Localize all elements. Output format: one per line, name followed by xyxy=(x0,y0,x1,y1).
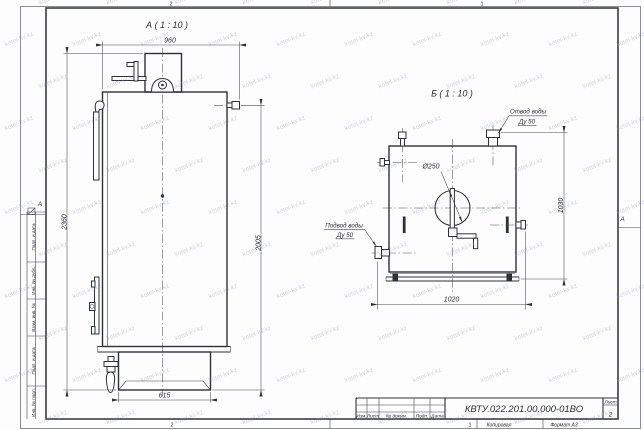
zone-bottom-right: 1 xyxy=(468,423,471,429)
fold-mark-left: А xyxy=(37,201,42,208)
left-upper-stub xyxy=(377,159,420,167)
inlet-label-line1: Подвод воды xyxy=(325,223,363,230)
ash-door-latch xyxy=(104,357,118,393)
engineering-drawing: 2 1 2 1 А А Подп. и дата Инв. № дубл. Вз… xyxy=(0,0,644,430)
titleblock-col-data: Дата xyxy=(430,414,444,420)
dim-960: 960 xyxy=(164,38,176,45)
drawing-sheet: 2 1 2 1 А А Подп. и дата Инв. № дубл. Вз… xyxy=(0,0,644,430)
body-center-mark xyxy=(161,194,164,197)
boiler-top-view xyxy=(372,126,529,294)
sidebar-label-podp-data-1: Подп. и дата xyxy=(31,223,36,251)
dim-2005: 2005 xyxy=(256,235,263,252)
titleblock-col-ndokum: № докум. xyxy=(386,414,407,420)
left-weld-mark xyxy=(403,217,406,234)
sidebar-label-podp-data-2: Подп. и дата xyxy=(31,347,36,375)
inlet-water-label: Подвод воды Ду 50 xyxy=(324,223,377,247)
damper-axle-center xyxy=(161,84,164,87)
outlet-label-line2: Ду 50 xyxy=(518,119,536,126)
sidebar-label-vzam-inv: Взам. инв. № xyxy=(31,303,36,332)
boiler-base xyxy=(98,347,231,391)
footer-copied-by: Копировал xyxy=(487,423,512,429)
sheet-label: Лист xyxy=(603,400,616,406)
dim-2360: 2360 xyxy=(62,214,69,231)
zone-bottom-left: 2 xyxy=(170,423,173,429)
dim-1020: 1020 xyxy=(444,297,460,304)
zone-top-right: 1 xyxy=(480,2,483,8)
view-b-title: Б ( 1 : 10 ) xyxy=(431,89,473,99)
footer-format: Формат А3 xyxy=(550,423,578,429)
view-a-title: А ( 1 : 10 ) xyxy=(145,20,188,30)
door-hinge-strip xyxy=(90,277,100,334)
outlet-label-line1: Отвод воды xyxy=(510,109,547,116)
titleblock-col-podp: Подп. xyxy=(416,414,429,420)
outlet-nozzle-front xyxy=(214,102,245,110)
title-block: Изм. Лист № докум. Подп. Дата КВТУ.022.2… xyxy=(356,398,618,429)
damper-crank xyxy=(449,228,478,249)
view-b-dimensions: Ø250 1030 1020 Отвод воды Ду 50 Подвод в… xyxy=(324,109,568,310)
sidebar-label-inv-podl: Инв. № подл. xyxy=(31,388,36,417)
top-left-stub xyxy=(399,128,407,182)
sidebar-label-inv-dubl: Инв. № дубл. xyxy=(31,266,36,294)
zone-top-left: 2 xyxy=(169,2,172,8)
inlet-nozzle-top xyxy=(372,247,417,259)
boiler-front-view xyxy=(90,48,246,396)
titleblock-col-list: Лист xyxy=(366,414,379,420)
inlet-label-line2: Ду 50 xyxy=(336,232,354,239)
damper-lever xyxy=(112,62,146,82)
doc-number: КВТУ.022.201.00.000-01ВО xyxy=(465,404,584,415)
dim-1030: 1030 xyxy=(558,198,565,214)
sheet-number: 2 xyxy=(608,412,613,419)
right-stub xyxy=(490,221,528,230)
outlet-nozzle-top xyxy=(487,126,500,169)
sidebar-frame-cells: Подп. и дата Инв. № дубл. Взам. инв. № П… xyxy=(27,212,46,419)
outlet-water-label: Отвод воды Ду 50 xyxy=(499,109,548,134)
dim-615: 615 xyxy=(159,393,171,400)
right-weld-mark xyxy=(506,217,509,234)
dim-hole-250: Ø250 xyxy=(421,164,439,171)
boiler-body xyxy=(103,92,228,347)
fold-mark-right: А xyxy=(619,216,624,223)
titleblock-col-izm: Изм. xyxy=(356,414,366,420)
